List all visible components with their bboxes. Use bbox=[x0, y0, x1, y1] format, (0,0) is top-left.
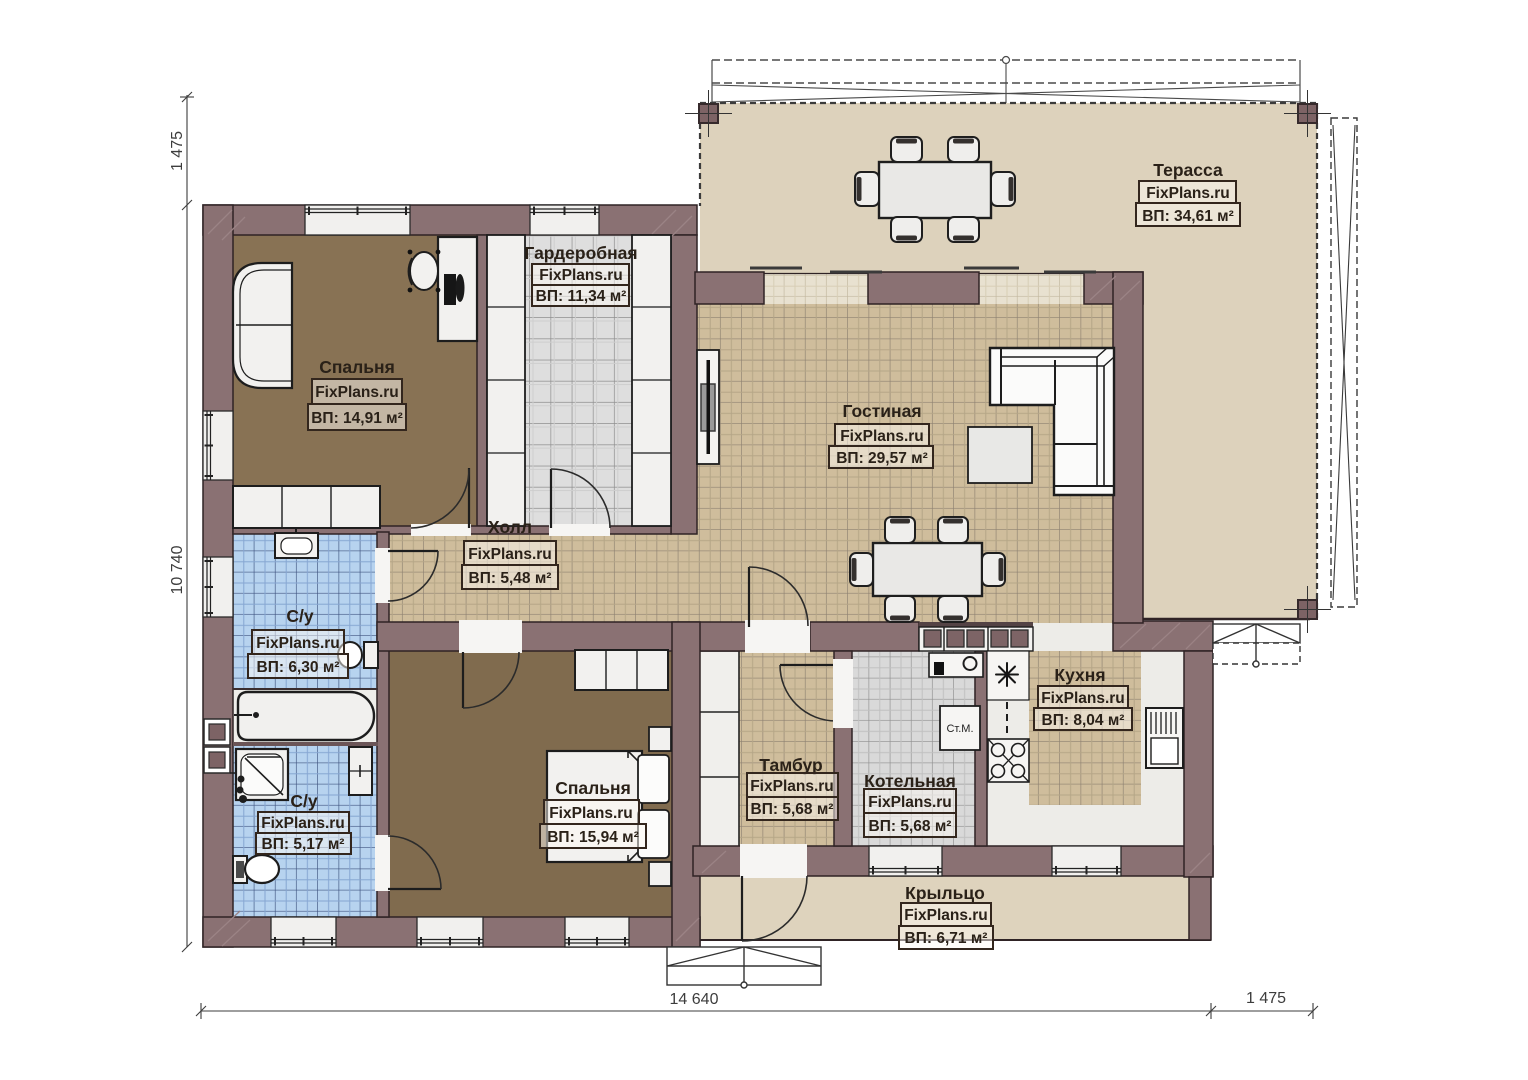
svg-text:ВП: 5,68 м²: ВП: 5,68 м² bbox=[869, 818, 952, 835]
svg-text:ВП: 5,48 м²: ВП: 5,48 м² bbox=[469, 570, 552, 587]
svg-text:Крыльцо: Крыльцо bbox=[905, 883, 985, 903]
svg-text:ВП: 5,17 м²: ВП: 5,17 м² bbox=[262, 836, 345, 853]
svg-text:FixPlans.ru: FixPlans.ru bbox=[1041, 690, 1125, 707]
svg-text:FixPlans.ru: FixPlans.ru bbox=[750, 778, 834, 795]
svg-text:10 740: 10 740 bbox=[169, 545, 186, 594]
svg-text:ВП: 15,94 м²: ВП: 15,94 м² bbox=[547, 829, 639, 846]
svg-text:1 475: 1 475 bbox=[169, 131, 186, 171]
svg-text:FixPlans.ru: FixPlans.ru bbox=[904, 907, 988, 924]
svg-text:Холл: Холл bbox=[488, 517, 532, 537]
svg-text:ВП: 11,34 м²: ВП: 11,34 м² bbox=[536, 288, 627, 305]
svg-text:FixPlans.ru: FixPlans.ru bbox=[315, 384, 399, 401]
svg-text:ВП: 6,71 м²: ВП: 6,71 м² bbox=[905, 930, 988, 947]
svg-text:Гардеробная: Гардеробная bbox=[524, 243, 637, 263]
svg-text:FixPlans.ru: FixPlans.ru bbox=[468, 546, 552, 563]
svg-text:ВП: 8,04 м²: ВП: 8,04 м² bbox=[1042, 712, 1125, 729]
svg-text:FixPlans.ru: FixPlans.ru bbox=[256, 635, 340, 652]
svg-text:ВП: 29,57 м²: ВП: 29,57 м² bbox=[836, 450, 928, 467]
svg-text:14 640: 14 640 bbox=[670, 991, 719, 1008]
svg-text:Ст.М.: Ст.М. bbox=[946, 723, 973, 735]
svg-text:ВП: 6,30 м²: ВП: 6,30 м² bbox=[257, 659, 340, 676]
svg-text:1 475: 1 475 bbox=[1246, 990, 1286, 1007]
svg-text:FixPlans.ru: FixPlans.ru bbox=[261, 815, 345, 832]
svg-text:Спальня: Спальня bbox=[319, 357, 395, 377]
svg-text:FixPlans.ru: FixPlans.ru bbox=[539, 267, 623, 284]
svg-text:С/у: С/у bbox=[286, 606, 314, 626]
svg-text:Кухня: Кухня bbox=[1054, 665, 1105, 685]
svg-text:ВП: 34,61 м²: ВП: 34,61 м² bbox=[1142, 208, 1234, 225]
svg-text:FixPlans.ru: FixPlans.ru bbox=[549, 805, 633, 822]
svg-text:Терасса: Терасса bbox=[1153, 160, 1223, 180]
svg-text:FixPlans.ru: FixPlans.ru bbox=[868, 794, 952, 811]
svg-text:ВП: 5,68 м²: ВП: 5,68 м² bbox=[751, 801, 834, 818]
svg-text:FixPlans.ru: FixPlans.ru bbox=[840, 428, 924, 445]
svg-text:Спальня: Спальня bbox=[555, 778, 631, 798]
svg-text:Гостиная: Гостиная bbox=[842, 401, 921, 421]
svg-text:С/у: С/у bbox=[290, 791, 318, 811]
svg-text:FixPlans.ru: FixPlans.ru bbox=[1146, 185, 1230, 202]
svg-text:ВП: 14,91 м²: ВП: 14,91 м² bbox=[311, 410, 403, 427]
